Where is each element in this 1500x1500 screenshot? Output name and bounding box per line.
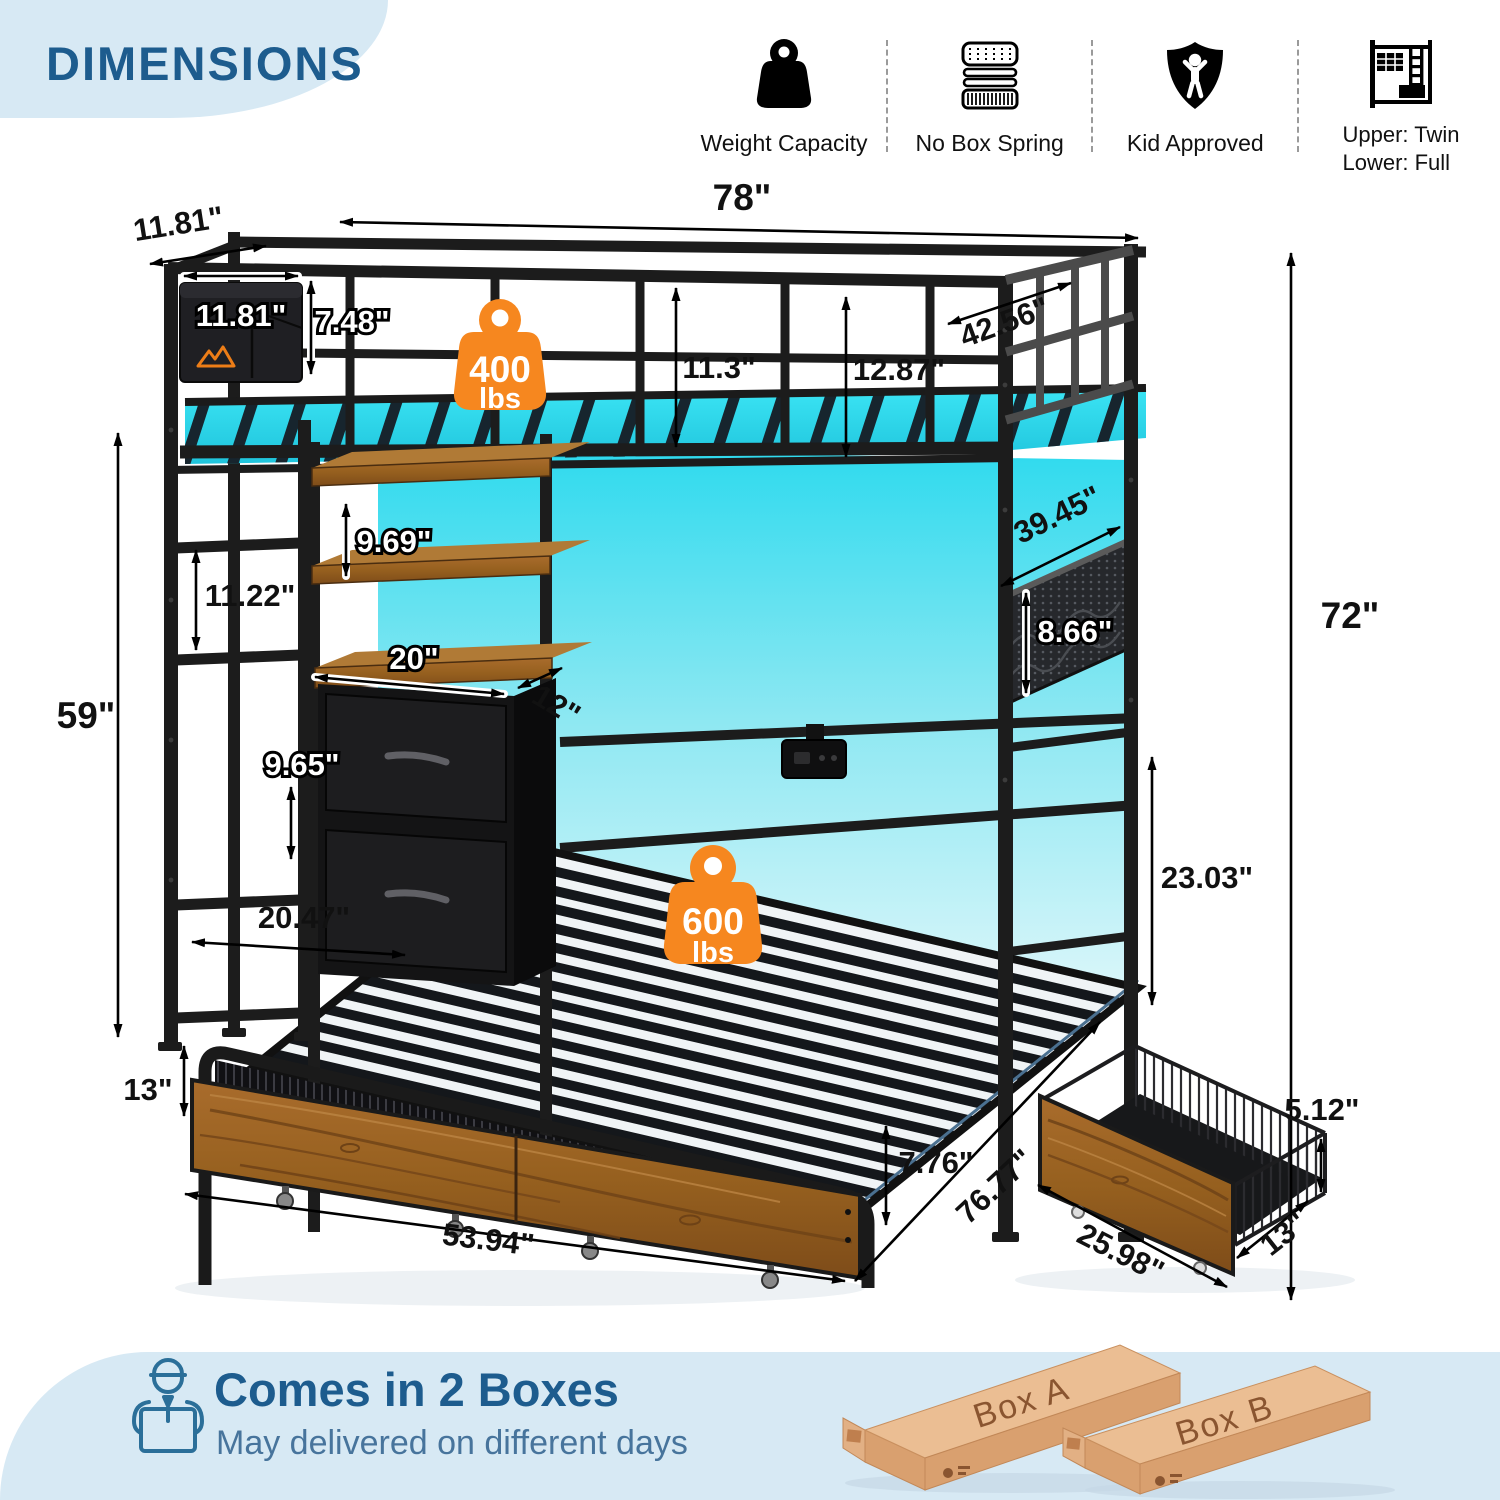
weight-capacity-icon xyxy=(748,34,820,120)
separator xyxy=(1091,40,1093,152)
dim-drawer-unit-height: 9.65" xyxy=(264,747,339,782)
weight-badge-upper: 400 lbs xyxy=(454,299,546,415)
badge-unit: lbs xyxy=(479,383,521,415)
dim-under-bunk-clearance: 23.03" xyxy=(1161,860,1253,895)
badge-value: 600 xyxy=(682,901,744,942)
dim-lower-frame-height: 7.76" xyxy=(898,1145,973,1180)
dim-end-depth: 11.81" xyxy=(131,199,226,248)
lower-size-label: Lower: Full xyxy=(1342,150,1450,175)
dim-storage-drawer-height: 5.12" xyxy=(1284,1092,1359,1127)
feature-kid-approved: Kid Approved xyxy=(1106,26,1284,176)
dim-pocket-width: 11.81" xyxy=(196,298,287,333)
page-title: DIMENSIONS xyxy=(0,0,388,91)
feature-no-box-spring: No Box Spring xyxy=(901,26,1079,176)
fabric-drawers xyxy=(318,678,556,986)
footer-title: Comes in 2 Boxes xyxy=(214,1362,619,1417)
dim-pocket-height: 7.48" xyxy=(314,304,389,339)
dim-overall-height: 72" xyxy=(1321,595,1380,636)
dim-ladder-rung-spacing: 11.22" xyxy=(205,578,296,613)
footer-subtitle: May delivered on different days xyxy=(216,1424,688,1463)
badge-unit: lbs xyxy=(692,937,734,969)
feature-weight-capacity: Weight Capacity xyxy=(695,26,873,176)
shipping-boxes: Box A Box B xyxy=(820,1335,1500,1500)
feature-strip: Weight Capacity No Box Spring xyxy=(695,26,1490,176)
separator xyxy=(886,40,888,152)
feature-bed-sizes: Upper: Twin Lower: Full xyxy=(1312,26,1490,176)
dim-top-length: 78" xyxy=(713,180,772,218)
dim-guardrail-height-right: 12.87" xyxy=(853,352,945,387)
feature-label: Kid Approved xyxy=(1127,130,1264,158)
dim-underbed-clearance: 13" xyxy=(123,1072,172,1107)
dim-side-clearance-depth: 20.47" xyxy=(258,900,350,935)
back-top-rail xyxy=(235,242,1146,252)
no-box-spring-icon xyxy=(951,34,1029,120)
feature-label: No Box Spring xyxy=(916,130,1064,158)
dim-shelf-spacing: 9.69" xyxy=(356,524,431,559)
dim-guardrail-height-mid: 11.3" xyxy=(682,350,755,385)
upper-size-label: Upper: Twin xyxy=(1342,122,1459,147)
dim-drawer-unit-width: 20" xyxy=(389,641,438,676)
kid-approved-icon xyxy=(1159,34,1231,120)
bunk-bed-diagram: 400 lbs 600 lbs xyxy=(0,180,1500,1330)
feature-label: Weight Capacity xyxy=(700,130,867,158)
dim-net-panel-height: 8.66" xyxy=(1037,614,1112,649)
dim-under-loft-height: 59" xyxy=(57,695,116,736)
title-banner: DIMENSIONS xyxy=(0,0,388,118)
delivery-person-icon xyxy=(122,1345,214,1468)
separator xyxy=(1297,40,1299,152)
bunk-size-icon xyxy=(1365,34,1437,115)
